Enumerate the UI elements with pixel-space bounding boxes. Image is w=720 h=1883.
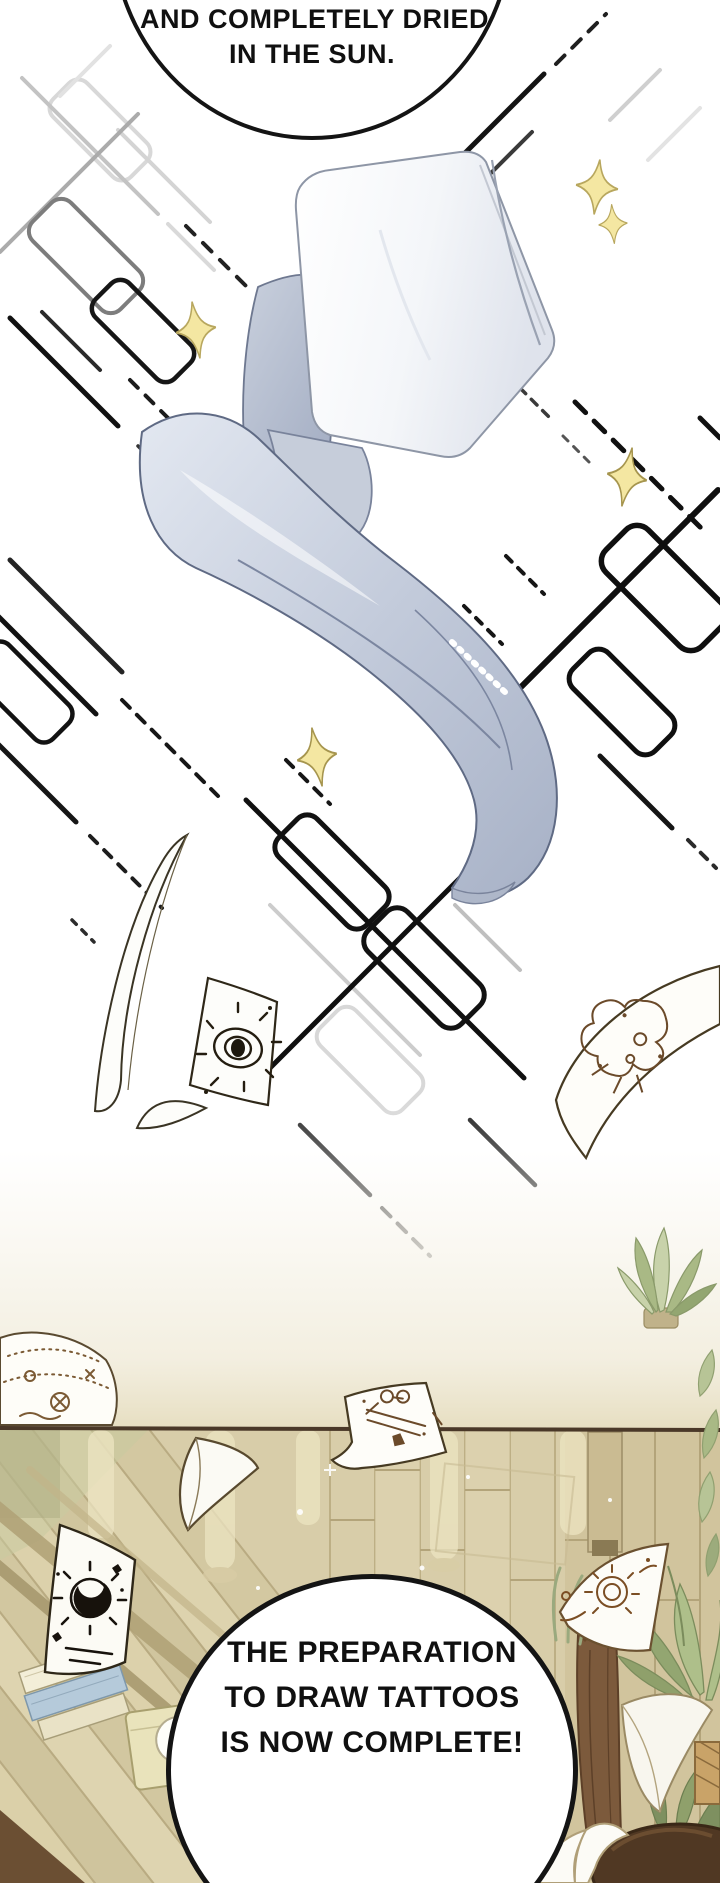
tattoo-paper-ornate-right xyxy=(556,966,720,1158)
basket xyxy=(695,1742,720,1804)
pillar xyxy=(588,1432,622,1552)
pillar-base xyxy=(592,1540,618,1556)
speech-line: AND COMPLETELY DRIED xyxy=(140,2,484,37)
speech-bubble-bottom-text: THE PREPARATION TO DRAW TATTOOS IS NOW C… xyxy=(190,1630,554,1765)
tattoo-paper-eye xyxy=(190,978,281,1105)
background-pattern-left xyxy=(0,560,218,942)
folded-cloth-top xyxy=(296,152,554,457)
tattoo-paper-center xyxy=(332,1383,446,1469)
speech-line: TO DRAW TATTOOS xyxy=(190,1675,554,1720)
sparkle-icon xyxy=(573,157,621,216)
speech-line: THE PREPARATION xyxy=(190,1630,554,1675)
speech-line: IN THE SUN. xyxy=(140,37,484,72)
sparkle-icon xyxy=(597,203,628,245)
speech-bubble-top-text: AND COMPLETELY DRIED IN THE SUN. xyxy=(140,2,484,72)
comic-page: AND COMPLETELY DRIED IN THE SUN. THE PRE… xyxy=(0,0,720,1883)
tattoo-paper-curl-left xyxy=(95,835,187,1111)
sparkle-icon xyxy=(292,724,342,789)
sparkle-icon xyxy=(602,444,652,509)
tattoo-paper-small-curl xyxy=(137,1101,206,1128)
speech-line: IS NOW COMPLETE! xyxy=(190,1720,554,1765)
